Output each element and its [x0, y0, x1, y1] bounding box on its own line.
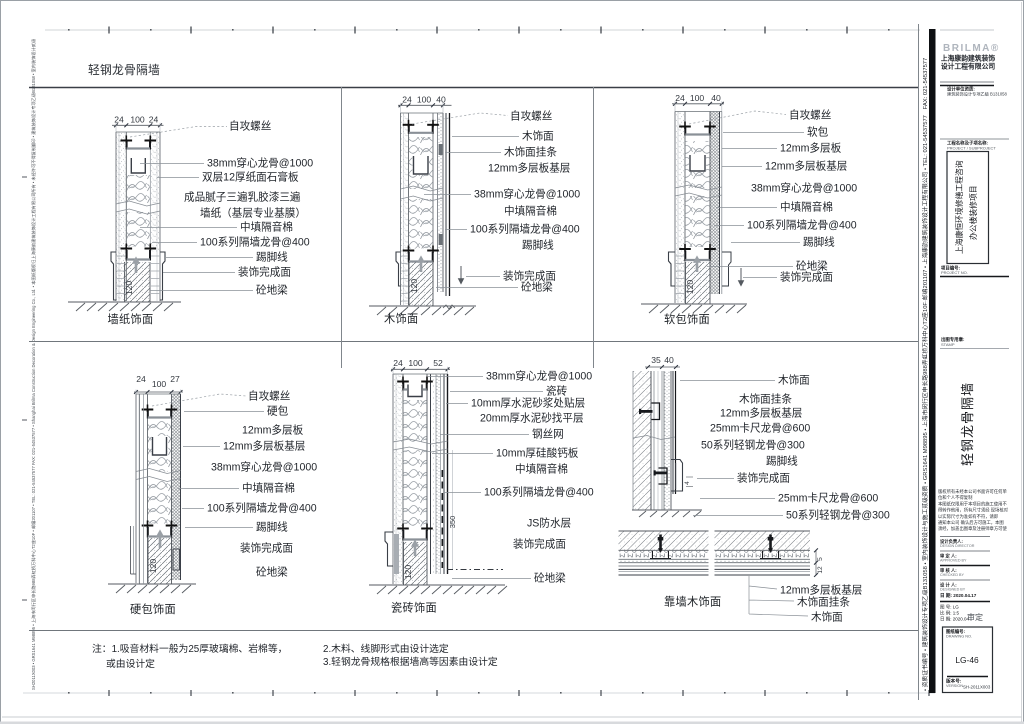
svg-text:40: 40	[664, 355, 674, 365]
svg-text:踢脚线: 踢脚线	[803, 236, 835, 249]
svg-text:砼地梁: 砼地梁	[256, 566, 288, 579]
svg-text:100: 100	[408, 358, 423, 368]
svg-text:版权所有未经本公司书面许可任何单: 版权所有未经本公司书面许可任何单	[938, 488, 1007, 495]
svg-text:或由设计定: 或由设计定	[106, 657, 155, 670]
svg-text:100: 100	[690, 93, 705, 103]
svg-text:APPROVED BY: APPROVED BY	[940, 559, 967, 563]
svg-text:砼地梁: 砼地梁	[534, 572, 566, 585]
svg-text:12mm多层板: 12mm多层板	[780, 142, 842, 155]
svg-text:12mm多层板基层: 12mm多层板基层	[765, 160, 847, 173]
svg-text:中填隔音棉: 中填隔音棉	[242, 482, 295, 495]
svg-text:木饰面挂条: 木饰面挂条	[739, 393, 792, 406]
svg-text:成品腻子三遍乳胶漆三遍: 成品腻子三遍乳胶漆三遍	[184, 191, 301, 204]
svg-text:CHECKED BY: CHECKED BY	[940, 573, 965, 577]
svg-text:50系列轻钢龙骨@300: 50系列轻钢龙骨@300	[701, 439, 805, 452]
svg-text:中填隔音棉: 中填隔音棉	[515, 463, 568, 476]
svg-text:100系列隔墙龙骨@400: 100系列隔墙龙骨@400	[207, 502, 317, 515]
svg-text:DESIGNED BY: DESIGNED BY	[940, 588, 966, 592]
svg-text:100系列隔墙龙骨@400: 100系列隔墙龙骨@400	[470, 223, 580, 236]
svg-text:10mm厚水泥砂浆处贴层: 10mm厚水泥砂浆处贴层	[471, 397, 585, 410]
svg-text:12mm多层板基层: 12mm多层板基层	[488, 162, 570, 175]
svg-text:双层12厚纸面石膏板: 双层12厚纸面石膏板	[202, 171, 299, 184]
svg-text:靠墙木饰面: 靠墙木饰面	[664, 595, 721, 609]
svg-text:瓷砖: 瓷砖	[546, 385, 568, 398]
svg-text:须经，加盖出图章及注册师章方可使: 须经，加盖出图章及注册师章方可使	[938, 525, 1007, 532]
svg-text:BRILMA®: BRILMA®	[943, 43, 1000, 54]
svg-text:软包: 软包	[807, 126, 829, 139]
svg-text:12mm多层板基层: 12mm多层板基层	[223, 440, 305, 453]
svg-text:24: 24	[114, 115, 124, 125]
svg-text:• 资质证书编号 • 建筑装饰设计专项乙级B131058 •: • 资质证书编号 • 建筑装饰设计专项乙级B131058 • 室内装饰设计与施工…	[921, 58, 929, 691]
svg-text:日 期: 2020.04.17: 日 期: 2020.04.17	[940, 592, 977, 599]
svg-text:100: 100	[152, 379, 167, 389]
svg-text:审定: 审定	[967, 612, 983, 622]
svg-text:踢脚线: 踢脚线	[256, 251, 288, 264]
svg-text:10mm厚硅酸钙板: 10mm厚硅酸钙板	[496, 447, 579, 460]
svg-text:日 期: 2020.04: 日 期: 2020.04	[940, 617, 970, 623]
svg-text:25mm卡尺龙骨@600: 25mm卡尺龙骨@600	[710, 422, 810, 435]
svg-text:办公楼装修项目: 办公楼装修项目	[968, 185, 978, 240]
svg-text:装饰完成面: 装饰完成面	[240, 542, 293, 555]
svg-text:中填隔音棉: 中填隔音棉	[780, 201, 833, 214]
svg-text:木饰面挂条: 木饰面挂条	[797, 596, 850, 609]
svg-text:24: 24	[136, 374, 146, 384]
svg-text:38mm穿心龙骨@1000: 38mm穿心龙骨@1000	[474, 188, 580, 201]
svg-text:得转作他用，所有尺寸须经 现场核对: 得转作他用，所有尺寸须经 现场核对	[938, 507, 1009, 514]
svg-text:24: 24	[149, 115, 159, 125]
svg-text:木饰面: 木饰面	[384, 312, 418, 326]
svg-text:120: 120	[124, 281, 134, 296]
svg-text:25mm卡尺龙骨@600: 25mm卡尺龙骨@600	[778, 492, 878, 505]
svg-text:中填隔音棉: 中填隔音棉	[504, 205, 557, 218]
svg-text:自攻螺丝: 自攻螺丝	[510, 110, 553, 123]
svg-text:中填隔音棉: 中填隔音棉	[240, 221, 293, 234]
svg-text:27: 27	[170, 374, 180, 384]
svg-text:100: 100	[417, 95, 432, 105]
svg-text:软包饰面: 软包饰面	[664, 312, 710, 326]
svg-text:38mm穿心龙骨@1000: 38mm穿心龙骨@1000	[207, 157, 313, 170]
svg-text:自攻螺丝: 自攻螺丝	[248, 390, 291, 403]
svg-text:350: 350	[448, 516, 457, 529]
svg-text:STAMP: STAMP	[941, 342, 955, 347]
svg-text:PROJECT NO.: PROJECT NO.	[941, 270, 968, 275]
svg-text:52: 52	[433, 358, 443, 368]
svg-text:轻钢龙骨隔墙: 轻钢龙骨隔墙	[960, 382, 975, 466]
svg-text:2.木料、线脚形式由设计选定: 2.木料、线脚形式由设计选定	[323, 642, 449, 655]
svg-text:建筑装饰设计专项乙级 B131058: 建筑装饰设计专项乙级 B131058	[947, 91, 1007, 98]
svg-text:自攻螺丝: 自攻螺丝	[789, 109, 832, 122]
svg-text:砼地梁: 砼地梁	[256, 284, 288, 297]
svg-text:墙纸饰面: 墙纸饰面	[108, 312, 154, 326]
svg-text:木饰面: 木饰面	[522, 130, 554, 143]
svg-text:砼地梁: 砼地梁	[521, 281, 553, 294]
svg-text:LG-46: LG-46	[955, 655, 979, 665]
svg-text:硬包: 硬包	[267, 405, 289, 418]
svg-text:JS防水层: JS防水层	[527, 517, 571, 530]
svg-text:120: 120	[148, 559, 158, 574]
svg-text:自攻螺丝: 自攻螺丝	[229, 120, 272, 133]
svg-text:12mm多层板: 12mm多层板	[242, 424, 304, 437]
svg-text:装饰完成面: 装饰完成面	[513, 538, 566, 551]
svg-text:装饰完成面: 装饰完成面	[238, 266, 291, 279]
svg-text:12: 12	[817, 566, 824, 574]
svg-text:比 例: 1:5: 比 例: 1:5	[940, 610, 960, 617]
svg-text:踢脚线: 踢脚线	[256, 521, 288, 534]
svg-text:24: 24	[675, 93, 685, 103]
svg-text:4: 4	[684, 481, 691, 485]
svg-text:SH-2011X003: SH-2011X003	[963, 685, 991, 690]
svg-text:木饰面挂条: 木饰面挂条	[504, 146, 557, 159]
svg-text:轻钢龙骨隔墙: 轻钢龙骨隔墙	[88, 63, 160, 77]
svg-text:装饰完成面: 装饰完成面	[737, 472, 790, 485]
svg-text:上海康韵建筑装饰: 上海康韵建筑装饰	[941, 54, 996, 63]
svg-text:DESIGN DIRECTOR: DESIGN DIRECTOR	[940, 544, 975, 548]
svg-text:40: 40	[711, 93, 721, 103]
svg-text:注：1.吸音材料一般为25厚玻璃棉、岩棉等，: 注：1.吸音材料一般为25厚玻璃棉、岩棉等，	[92, 642, 287, 655]
svg-text:50系列轻钢龙骨@300: 50系列轻钢龙骨@300	[786, 509, 890, 522]
svg-text:钢丝网: 钢丝网	[532, 428, 564, 441]
svg-text:120: 120	[403, 565, 413, 580]
svg-text:位和个人不得复制: 位和个人不得复制	[938, 494, 972, 501]
svg-text:墙纸（基层专业基膜）: 墙纸（基层专业基膜）	[200, 207, 306, 220]
svg-text:5: 5	[817, 557, 824, 561]
svg-text:38mm穿心龙骨@1000: 38mm穿心龙骨@1000	[486, 370, 592, 383]
svg-text:SH2011X003 • GRS1641 M98895 •: SH2011X003 • GRS1641 M98895 • 上海市闵行区申长路9…	[30, 38, 37, 690]
svg-text:VERSION: VERSION	[946, 684, 963, 688]
svg-text:以实际尺寸为准如有不符，请即: 以实际尺寸为准如有不符，请即	[938, 513, 998, 520]
svg-text:装饰完成面: 装饰完成面	[780, 271, 833, 284]
svg-text:100系列隔墙龙骨@400: 100系列隔墙龙骨@400	[200, 236, 310, 249]
svg-text:24: 24	[393, 358, 403, 368]
svg-text:100系列隔墙龙骨@400: 100系列隔墙龙骨@400	[747, 219, 857, 232]
svg-text:瓷砖饰面: 瓷砖饰面	[391, 601, 437, 615]
svg-text:38mm穿心龙骨@1000: 38mm穿心龙骨@1000	[751, 182, 857, 195]
svg-text:上海康恒环境修缮工程咨询: 上海康恒环境修缮工程咨询	[954, 160, 964, 254]
svg-text:12mm多层板基层: 12mm多层板基层	[720, 407, 802, 420]
svg-text:通知本公司 确认后方可施工，本图: 通知本公司 确认后方可施工，本图	[938, 519, 1004, 526]
svg-text:木饰面: 木饰面	[778, 374, 810, 387]
svg-text:38mm穿心龙骨@1000: 38mm穿心龙骨@1000	[211, 461, 317, 474]
svg-text:设计工程有限公司: 设计工程有限公司	[941, 62, 996, 71]
svg-text:120: 120	[409, 279, 419, 294]
svg-text:硬包饰面: 硬包饰面	[130, 602, 176, 616]
svg-text:120: 120	[685, 280, 695, 295]
svg-text:木饰面: 木饰面	[811, 611, 843, 624]
svg-text:PROJECT / SUBPROJECT: PROJECT / SUBPROJECT	[947, 146, 996, 151]
svg-text:踢脚线: 踢脚线	[522, 239, 554, 252]
svg-text:35: 35	[651, 355, 661, 365]
svg-text:12mm多层板基层: 12mm多层板基层	[780, 584, 862, 597]
svg-text:20mm厚水泥砂找平层: 20mm厚水泥砂找平层	[480, 412, 584, 425]
svg-text:24: 24	[402, 95, 412, 105]
svg-text:3.轻钢龙骨规格根据墙高等因素由设计定: 3.轻钢龙骨规格根据墙高等因素由设计定	[323, 655, 498, 668]
svg-text:100系列隔墙龙骨@400: 100系列隔墙龙骨@400	[484, 486, 594, 499]
svg-text:本图纸仅限用于本项目的施工使用不: 本图纸仅限用于本项目的施工使用不	[938, 500, 1007, 507]
svg-text:DRAWING NO.: DRAWING NO.	[946, 635, 972, 639]
svg-text:100: 100	[130, 115, 145, 125]
svg-text:踢脚线: 踢脚线	[766, 455, 798, 468]
